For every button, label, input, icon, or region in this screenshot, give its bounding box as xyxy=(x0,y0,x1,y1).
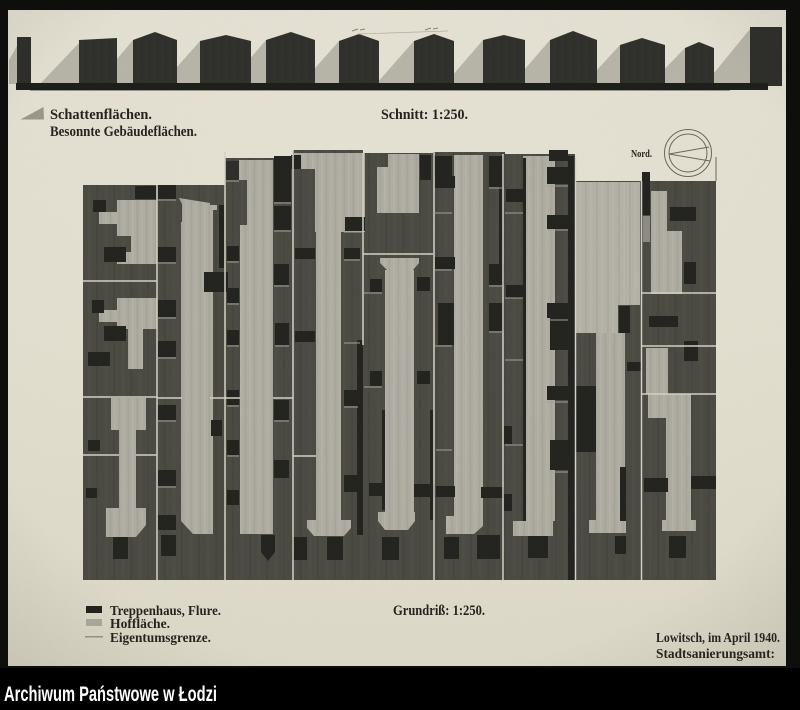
svg-text:Archiwum Państwowe w Łodzi: Archiwum Państwowe w Łodzi xyxy=(4,683,217,706)
